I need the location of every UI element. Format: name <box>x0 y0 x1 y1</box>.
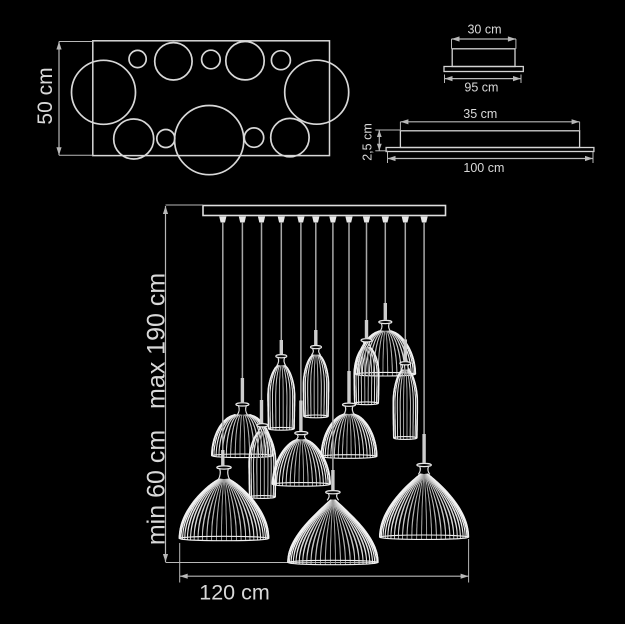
svg-text:50 cm: 50 cm <box>34 67 57 124</box>
svg-text:95 cm: 95 cm <box>464 81 498 95</box>
svg-text:2,5 cm: 2,5 cm <box>361 123 375 161</box>
svg-text:120 cm: 120 cm <box>199 581 270 605</box>
svg-text:100 cm: 100 cm <box>463 161 504 175</box>
svg-text:min 60 cm max 190 cm: min 60 cm max 190 cm <box>143 273 171 545</box>
svg-text:35 cm: 35 cm <box>463 107 497 121</box>
svg-text:30 cm: 30 cm <box>467 23 501 37</box>
